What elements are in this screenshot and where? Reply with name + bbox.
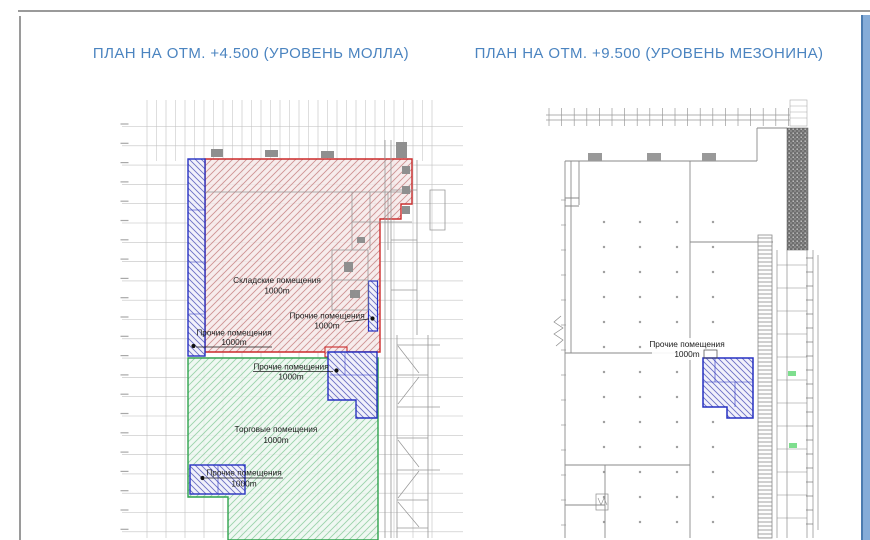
other-right-label: Прочие помещения <box>289 311 364 321</box>
warehouse-region <box>205 159 412 352</box>
left-plan-title: ПЛАН НА ОТМ. +4.500 (УРОВЕНЬ МОЛЛА) <box>56 45 446 62</box>
trade-label: Торговые помещения <box>235 424 318 434</box>
zones <box>188 159 412 540</box>
other-left-label: Прочие помещения <box>196 328 271 338</box>
mall-level-plan: Складские помещения 1000m Прочие помещен… <box>115 88 465 540</box>
break-symbol <box>554 316 563 346</box>
sheet-frame-top-line <box>18 10 870 12</box>
green-mark-2 <box>789 443 797 448</box>
dimension-line <box>546 108 790 126</box>
other-area: 1000m <box>674 349 699 359</box>
mini-dim-block <box>790 100 807 126</box>
other-bottom-area: 1000m <box>231 479 256 489</box>
green-mark-1 <box>788 371 796 376</box>
drawing-sheet: ПЛАН НА ОТМ. +4.500 (УРОВЕНЬ МОЛЛА) ПЛАН… <box>0 0 870 540</box>
other-mid-area: 1000m <box>278 372 303 382</box>
sheet-frame-left-line <box>19 16 21 540</box>
other-bottom-label: Прочие помещения <box>206 468 281 478</box>
service-rooms <box>561 200 813 525</box>
escalator-ladder <box>758 235 772 538</box>
other-region-group <box>703 358 753 418</box>
outline-walls <box>554 128 787 538</box>
warehouse-label: Складские помещения <box>233 275 321 285</box>
dense-core-block <box>787 128 808 250</box>
other-left-area: 1000m <box>221 337 246 347</box>
other-mid-label: Прочие помещения <box>253 362 328 372</box>
other-region <box>703 358 753 418</box>
door-symbols <box>588 153 716 161</box>
column-dots <box>603 221 714 523</box>
other-rooms-small-right <box>369 281 378 331</box>
warehouse-area: 1000m <box>264 286 289 296</box>
mezzanine-level-plan: Прочие помещения 1000m <box>528 95 860 540</box>
right-plan-title: ПЛАН НА ОТМ. +9.500 (УРОВЕНЬ МЕЗОНИНА) <box>449 45 849 62</box>
trade-area: 1000m <box>263 435 288 445</box>
other-right-area: 1000m <box>314 321 339 331</box>
right-service-strip <box>561 100 818 538</box>
other-label: Прочие помещения <box>649 339 724 349</box>
right-edge-bar <box>861 15 870 540</box>
other-rooms-left-strip <box>188 159 205 356</box>
